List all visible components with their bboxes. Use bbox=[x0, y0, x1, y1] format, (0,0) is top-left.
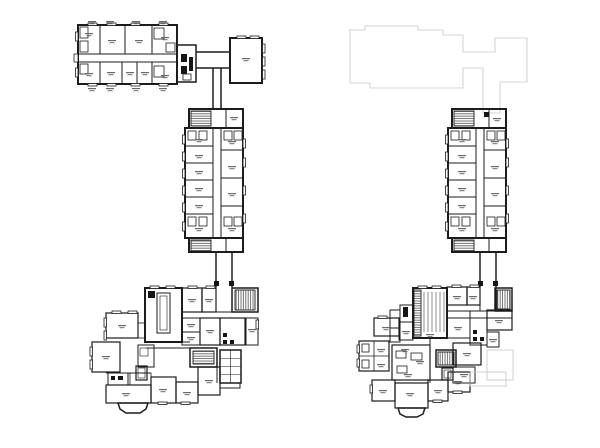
window-grid bbox=[220, 350, 241, 383]
room-label bbox=[377, 349, 385, 352]
fixture bbox=[111, 376, 115, 380]
fixture bbox=[229, 281, 234, 286]
window-bump bbox=[237, 36, 246, 39]
room-label bbox=[491, 228, 499, 231]
fixture bbox=[148, 291, 155, 298]
room-label bbox=[161, 37, 169, 40]
room-label bbox=[195, 139, 203, 142]
window-bump bbox=[90, 360, 93, 369]
room-label bbox=[406, 393, 414, 396]
room-label bbox=[377, 364, 385, 367]
room-label bbox=[458, 171, 466, 174]
room-label bbox=[108, 40, 116, 43]
window-bump bbox=[263, 44, 266, 53]
window-bump bbox=[74, 54, 78, 62]
room-label bbox=[463, 353, 471, 356]
fixture bbox=[223, 340, 227, 344]
stair-hatch bbox=[497, 290, 510, 309]
fixture bbox=[484, 112, 489, 117]
fixture bbox=[230, 340, 234, 344]
wall bbox=[130, 373, 151, 385]
wall bbox=[362, 360, 369, 368]
room-label bbox=[458, 155, 466, 158]
room-label bbox=[205, 299, 213, 302]
fixture bbox=[181, 54, 187, 62]
window-bump bbox=[357, 359, 360, 367]
wall bbox=[177, 45, 196, 82]
fixture bbox=[473, 330, 477, 334]
wall bbox=[199, 217, 207, 226]
room-label bbox=[122, 393, 130, 396]
window-bump bbox=[183, 135, 186, 144]
stair-hatch bbox=[191, 111, 211, 126]
room-label bbox=[228, 228, 236, 231]
window-bump bbox=[128, 311, 137, 314]
room-label bbox=[460, 374, 468, 377]
window-bump bbox=[250, 36, 259, 39]
room-label bbox=[491, 141, 499, 144]
fixture bbox=[493, 281, 498, 286]
room-label bbox=[228, 166, 236, 169]
window-bump bbox=[183, 222, 186, 231]
window-bump bbox=[159, 84, 168, 87]
room-label bbox=[458, 188, 466, 191]
room-label bbox=[205, 380, 213, 383]
room-label bbox=[107, 72, 115, 75]
window-bump bbox=[263, 57, 266, 66]
wall bbox=[157, 293, 170, 333]
wall bbox=[497, 131, 505, 140]
window-bump bbox=[243, 158, 246, 167]
room-label bbox=[469, 296, 477, 299]
wall bbox=[80, 64, 88, 74]
room-label bbox=[228, 193, 236, 196]
window-bump bbox=[166, 286, 175, 289]
room-label bbox=[454, 327, 462, 330]
wall bbox=[140, 348, 148, 356]
wall bbox=[397, 366, 407, 373]
stair-hatch bbox=[438, 352, 454, 365]
room-label bbox=[248, 329, 256, 332]
window-bump bbox=[104, 318, 107, 327]
window-bump bbox=[206, 286, 215, 289]
room-label bbox=[195, 155, 203, 158]
drawing-sheet bbox=[0, 0, 600, 448]
room-label bbox=[458, 228, 466, 231]
wall bbox=[183, 74, 191, 80]
fixture bbox=[473, 337, 477, 341]
fixture bbox=[189, 57, 193, 71]
room-label bbox=[382, 327, 390, 330]
room-label bbox=[434, 390, 442, 393]
wall bbox=[199, 131, 207, 140]
window-bump bbox=[90, 347, 93, 356]
room-label bbox=[453, 296, 461, 299]
room-label bbox=[187, 324, 195, 327]
window-bump bbox=[418, 286, 427, 289]
room-label bbox=[489, 339, 497, 342]
room-label bbox=[195, 171, 203, 174]
room-label bbox=[132, 88, 140, 91]
room-label bbox=[493, 118, 501, 121]
wall bbox=[362, 344, 369, 352]
wall bbox=[188, 131, 196, 140]
window-bump bbox=[112, 311, 121, 314]
floor-plan-right bbox=[350, 26, 527, 417]
room-label bbox=[85, 73, 93, 76]
wall bbox=[470, 311, 487, 345]
window-bump bbox=[446, 203, 449, 212]
window-bump bbox=[433, 400, 442, 403]
room-label bbox=[135, 40, 143, 43]
room-label bbox=[195, 188, 203, 191]
room-label bbox=[195, 205, 203, 208]
room-label bbox=[187, 337, 195, 340]
stair-hatch bbox=[193, 351, 214, 364]
wall bbox=[411, 353, 422, 360]
room-label bbox=[404, 374, 412, 377]
window-bump bbox=[446, 169, 449, 178]
window-bump bbox=[446, 135, 449, 144]
window-bump bbox=[107, 84, 116, 87]
floor-plan-left bbox=[74, 21, 265, 413]
wall bbox=[160, 296, 167, 330]
window-bump bbox=[104, 331, 107, 340]
window-bump bbox=[243, 139, 246, 148]
window-bump bbox=[181, 402, 190, 405]
window-bump bbox=[183, 203, 186, 212]
stair-hatch bbox=[454, 111, 474, 126]
fixture bbox=[118, 376, 123, 380]
room-label bbox=[85, 33, 93, 36]
wall bbox=[234, 217, 242, 226]
room-label bbox=[141, 72, 149, 75]
room-label bbox=[379, 390, 387, 393]
window-bump bbox=[88, 84, 97, 87]
window-bump bbox=[76, 32, 79, 41]
room-label bbox=[416, 361, 424, 364]
window-bump bbox=[453, 391, 462, 394]
room-label bbox=[88, 88, 96, 91]
wall bbox=[80, 27, 88, 38]
ghost-outline bbox=[487, 350, 513, 380]
fixture bbox=[223, 333, 227, 337]
wall bbox=[487, 217, 495, 226]
window-bump bbox=[506, 214, 509, 223]
room-label bbox=[426, 334, 434, 337]
room-label bbox=[206, 330, 214, 333]
window-bump bbox=[243, 214, 246, 223]
wall bbox=[462, 131, 470, 140]
window-bump bbox=[263, 70, 266, 79]
window-bump bbox=[506, 139, 509, 148]
bay-window bbox=[398, 408, 425, 417]
window-bump bbox=[357, 345, 360, 353]
room-label bbox=[159, 389, 167, 392]
room-label bbox=[458, 205, 466, 208]
stair-hatch bbox=[414, 290, 421, 336]
room-label bbox=[183, 392, 191, 395]
window-bump bbox=[446, 186, 449, 195]
wall bbox=[462, 217, 470, 226]
wall bbox=[200, 318, 220, 345]
window-bump bbox=[183, 169, 186, 178]
window-bump bbox=[432, 286, 441, 289]
room-label bbox=[230, 117, 238, 120]
window-bump bbox=[470, 285, 479, 288]
fixture bbox=[403, 307, 408, 317]
room-label bbox=[495, 320, 503, 323]
window-bump bbox=[506, 186, 509, 195]
fixture bbox=[214, 281, 219, 286]
plan-svg bbox=[0, 0, 600, 448]
window-bump bbox=[446, 222, 449, 231]
window-bump bbox=[150, 286, 159, 289]
window-bump bbox=[506, 158, 509, 167]
room-label bbox=[126, 72, 134, 75]
room-label bbox=[402, 331, 410, 334]
fixture bbox=[480, 337, 484, 341]
wall bbox=[487, 131, 495, 140]
ghost-outline bbox=[350, 26, 527, 113]
wall bbox=[234, 131, 242, 140]
room-label bbox=[491, 193, 499, 196]
window-bump bbox=[378, 316, 387, 319]
room-label bbox=[159, 88, 167, 91]
room-label bbox=[118, 325, 126, 328]
window-bump bbox=[183, 186, 186, 195]
stair-hatch bbox=[235, 290, 255, 310]
wall bbox=[497, 217, 505, 226]
window-bump bbox=[183, 152, 186, 161]
window-bump bbox=[256, 320, 259, 329]
wall bbox=[138, 323, 145, 338]
room-label bbox=[102, 356, 110, 359]
room-label bbox=[242, 58, 250, 61]
room-label bbox=[228, 141, 236, 144]
wall bbox=[224, 131, 232, 140]
wall bbox=[451, 131, 459, 140]
window-bump bbox=[446, 152, 449, 161]
room-label bbox=[188, 299, 196, 302]
window-bump bbox=[158, 402, 167, 405]
window-bump bbox=[76, 68, 79, 77]
window-bump bbox=[370, 385, 373, 393]
wall bbox=[80, 41, 88, 52]
room-label bbox=[161, 75, 169, 78]
stair-hatch bbox=[191, 240, 211, 251]
stair-hatch bbox=[454, 240, 474, 251]
window-bump bbox=[452, 285, 461, 288]
room-label bbox=[458, 139, 466, 142]
room-label bbox=[491, 166, 499, 169]
wall bbox=[451, 217, 459, 226]
wall bbox=[166, 43, 175, 52]
window-bump bbox=[188, 286, 197, 289]
window-bump bbox=[131, 84, 140, 87]
room-label bbox=[106, 88, 114, 91]
window-bump bbox=[243, 186, 246, 195]
wall bbox=[188, 217, 196, 226]
wall bbox=[182, 332, 200, 345]
bay-window bbox=[118, 403, 148, 413]
wall bbox=[224, 217, 232, 226]
fixture bbox=[181, 66, 187, 74]
room-label bbox=[195, 228, 203, 231]
